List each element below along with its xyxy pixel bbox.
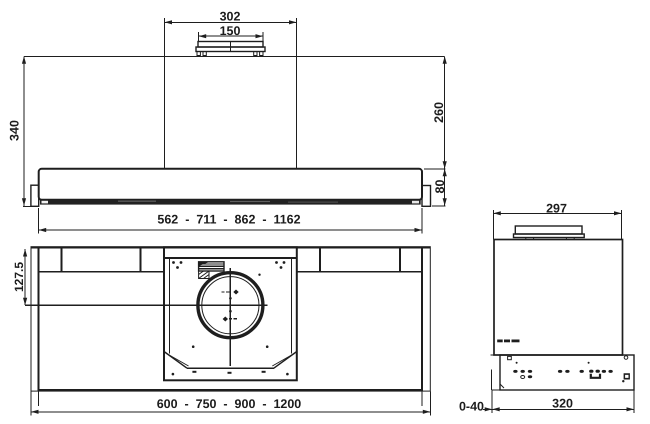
svg-text:127.5: 127.5 — [12, 262, 26, 292]
svg-text:600 - 750 - 900 - 1200: 600 - 750 - 900 - 1200 — [157, 397, 302, 411]
svg-text:302: 302 — [220, 10, 241, 24]
svg-text:340: 340 — [8, 120, 22, 141]
svg-text:562 - 711 - 862 - 1162: 562 - 711 - 862 - 1162 — [157, 213, 300, 227]
svg-text:0-40: 0-40 — [459, 400, 484, 414]
svg-text:320: 320 — [552, 397, 573, 411]
svg-text:260: 260 — [432, 102, 446, 123]
